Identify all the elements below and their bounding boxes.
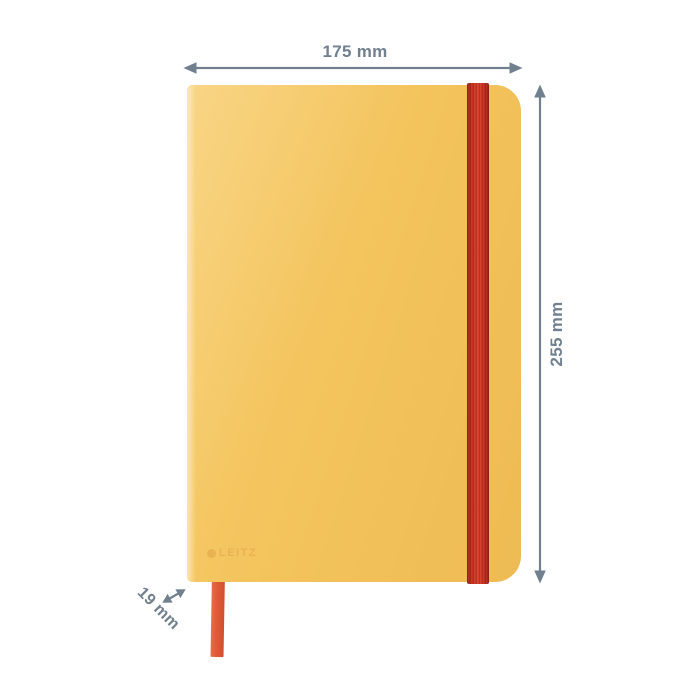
elastic-band [467, 83, 489, 584]
brand-logo-dot-icon [207, 549, 216, 558]
notebook-cover: LEITZ [187, 85, 521, 582]
height-dimension-label: 255 mm [547, 274, 565, 394]
product-dimension-diagram: 175 mm 255 mm 19 mm LEITZ [0, 0, 700, 700]
spine-highlight [187, 85, 196, 582]
brand-logo-text: LEITZ [219, 547, 257, 559]
brand-logo: LEITZ [207, 547, 257, 559]
width-dimension-arrow [183, 61, 523, 75]
height-dimension-arrow [533, 84, 547, 584]
ribbon-bookmark [211, 572, 225, 657]
width-dimension-label: 175 mm [295, 42, 415, 62]
depth-dimension-arrow [159, 584, 189, 608]
